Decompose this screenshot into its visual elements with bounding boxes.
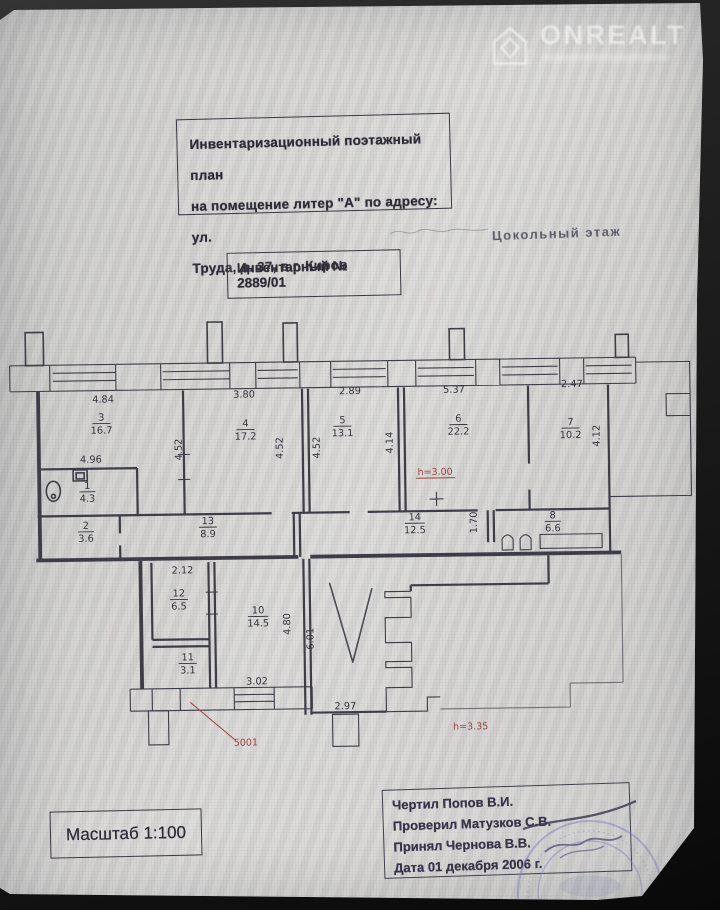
svg-text:1: 1: [84, 481, 90, 492]
scale-box: Масштаб 1:100: [50, 808, 203, 858]
svg-text:6.5: 6.5: [171, 601, 187, 612]
room-label: 138.9: [199, 516, 217, 540]
dimension-label: 4.14: [385, 432, 396, 454]
svg-text:5: 5: [339, 415, 345, 426]
room-label: 113.1: [179, 652, 197, 676]
watermark-tagline: [542, 54, 670, 61]
photo-background: ONREALT Инвентаризационный поэтажный пла…: [0, 0, 720, 910]
v-marker: [330, 583, 373, 663]
watermark-text: ONREALT: [540, 20, 686, 50]
title-box: Инвентаризационный поэтажный план на пом…: [176, 113, 452, 216]
svg-text:8.9: 8.9: [200, 529, 216, 540]
room-label: 513.1: [331, 415, 353, 439]
dimension-label: 5.37: [443, 385, 465, 396]
svg-text:12: 12: [172, 588, 185, 599]
room-label: 86.6: [545, 510, 561, 534]
inventory-number-text: Инвентарный № 2889/01: [237, 257, 401, 290]
svg-text:12.5: 12.5: [404, 525, 426, 536]
bathtub-icon: [46, 481, 60, 501]
room-label: 710.2: [559, 417, 581, 441]
plan-windows: [53, 365, 632, 381]
height-mark: h=3.35: [453, 721, 488, 732]
dimension-label: 3.80: [233, 389, 255, 400]
plan-outer-walls: [9, 315, 694, 690]
title-line-2: на помещение литер "А" по адресу: ул.: [191, 185, 446, 253]
svg-text:17.2: 17.2: [235, 431, 257, 442]
inventory-number-box: Инвентарный № 2889/01: [227, 249, 402, 299]
dimension-label: 4.52: [312, 437, 323, 459]
sink-icon: [73, 470, 87, 481]
reference-mark: 5001: [234, 737, 258, 748]
svg-text:22.2: 22.2: [448, 426, 470, 437]
dimension-label: 2.89: [339, 386, 361, 397]
svg-text:8: 8: [550, 510, 556, 521]
onrealt-watermark: ONREALT: [490, 20, 686, 68]
svg-text:3.1: 3.1: [180, 665, 196, 676]
stairs: [385, 591, 441, 712]
floor-plan-drawing: 316.7 417.2 513.1 622.2 710.2 14.3 23.6 …: [0, 295, 720, 775]
handwriting-scribble: [388, 224, 492, 242]
svg-text:14.5: 14.5: [247, 618, 269, 629]
room-label: 1412.5: [404, 512, 426, 536]
dimension-label: 4.96: [80, 455, 102, 466]
room-label: 417.2: [234, 418, 256, 442]
svg-text:4: 4: [242, 419, 248, 430]
room-label: 126.5: [170, 588, 188, 612]
dimension-label: 2.12: [171, 565, 193, 576]
dimension-label: 2.47: [561, 379, 583, 390]
height-mark: h=3.00: [417, 467, 452, 478]
toilet-icon: [502, 535, 513, 550]
floor-label: Цокольный этаж: [492, 224, 622, 243]
svg-text:3.6: 3.6: [78, 534, 94, 545]
counter: [540, 534, 602, 549]
room-label: 1014.5: [247, 605, 269, 629]
room-label: 316.7: [90, 412, 112, 436]
svg-text:6: 6: [455, 414, 461, 425]
dimension-label: 6.01: [305, 628, 316, 650]
svg-text:4.3: 4.3: [80, 494, 96, 505]
signature-box: Чертил Попов В.И. Проверил Матузков С.В.…: [382, 782, 633, 879]
dimension-label: 4.84: [92, 394, 114, 405]
plan-partitions: [36, 384, 624, 750]
svg-text:11: 11: [181, 652, 194, 663]
dimension-label: 2.97: [334, 701, 356, 712]
title-line-1: Инвентаризационный поэтажный план: [189, 123, 444, 191]
svg-text:14: 14: [408, 512, 421, 523]
svg-text:3: 3: [98, 413, 104, 424]
svg-text:6.6: 6.6: [545, 523, 561, 534]
house-icon: [490, 24, 530, 68]
dimension-label: 4.52: [275, 437, 286, 459]
svg-text:10.2: 10.2: [560, 430, 582, 441]
dimension-label: 4.80: [282, 613, 293, 635]
dimension-label: 3.02: [246, 676, 268, 687]
svg-text:16.7: 16.7: [91, 425, 113, 436]
dimension-label: 4.52: [174, 439, 185, 461]
svg-text:13.1: 13.1: [332, 428, 354, 439]
scale-label: Масштаб 1:100: [66, 822, 186, 845]
svg-text:13: 13: [201, 516, 214, 527]
room-label: 23.6: [78, 521, 94, 545]
room-label: 622.2: [447, 413, 469, 437]
toilet-icon: [520, 535, 531, 550]
document-paper: ONREALT Инвентаризационный поэтажный пла…: [0, 0, 720, 910]
dimension-label: 4.12: [591, 425, 602, 447]
room-label: 14.3: [79, 481, 95, 505]
dimension-label: 1.70: [469, 511, 480, 533]
svg-text:10: 10: [252, 605, 265, 616]
svg-text:2: 2: [83, 521, 89, 532]
svg-text:7: 7: [567, 417, 573, 428]
